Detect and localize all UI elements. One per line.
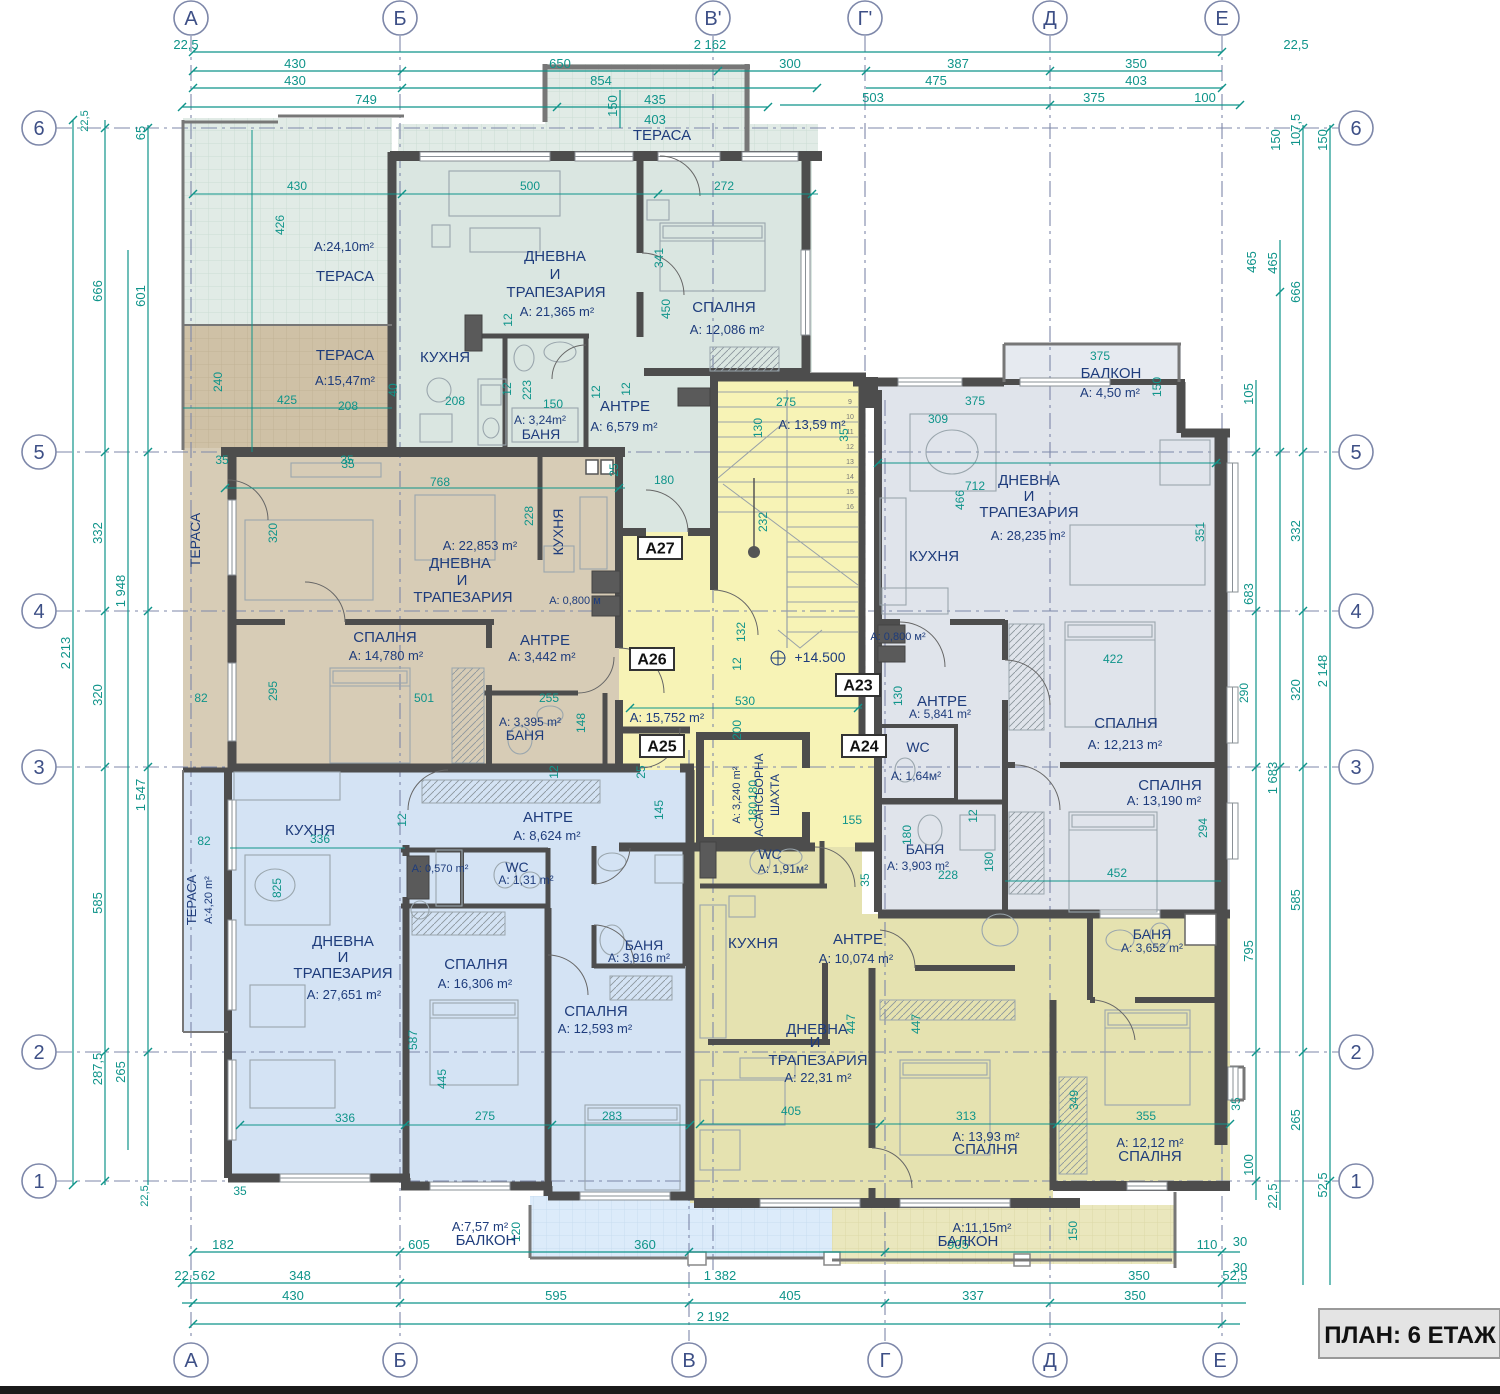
svg-text:12: 12	[730, 657, 744, 671]
svg-text:605: 605	[408, 1237, 430, 1252]
svg-text:148: 148	[574, 713, 588, 733]
svg-text:360: 360	[634, 1237, 656, 1252]
svg-text:ТЕРАСА: ТЕРАСА	[184, 874, 199, 925]
svg-text:375: 375	[1090, 349, 1110, 363]
svg-text:232: 232	[756, 512, 770, 532]
svg-text:180: 180	[654, 473, 674, 487]
svg-text:БАНЯ: БАНЯ	[906, 841, 944, 857]
svg-text:WC: WC	[906, 739, 929, 755]
svg-text:A26: A26	[637, 652, 666, 669]
svg-text:БАНЯ: БАНЯ	[1133, 926, 1171, 942]
svg-text:A23: A23	[843, 678, 872, 695]
svg-text:132: 132	[734, 622, 748, 642]
svg-text:65: 65	[133, 126, 148, 140]
svg-text:475: 475	[925, 73, 947, 88]
svg-text:430: 430	[284, 73, 306, 88]
svg-text:22,5: 22,5	[139, 1185, 151, 1206]
svg-text:А: 0,800 м²: А: 0,800 м²	[870, 631, 926, 643]
svg-text:287,5: 287,5	[90, 1053, 105, 1086]
svg-text:35: 35	[340, 453, 354, 467]
svg-text:ТРАПЕЗАРИЯ: ТРАПЕЗАРИЯ	[413, 589, 512, 606]
svg-text:СПАЛНЯ: СПАЛНЯ	[444, 956, 507, 973]
svg-text:12: 12	[547, 765, 561, 779]
svg-text:265: 265	[113, 1061, 128, 1083]
svg-text:1: 1	[33, 1171, 44, 1193]
svg-text:5: 5	[33, 442, 44, 464]
svg-text:А: 1,91м²: А: 1,91м²	[758, 862, 808, 876]
svg-text:450: 450	[659, 299, 673, 319]
svg-text:585: 585	[90, 892, 105, 914]
svg-text:150: 150	[1268, 129, 1283, 151]
svg-text:445: 445	[435, 1069, 449, 1089]
svg-text:ДНЕВНА: ДНЕВНА	[998, 472, 1060, 489]
svg-text:405: 405	[779, 1288, 801, 1303]
svg-text:А: 1,31 m²: А: 1,31 m²	[498, 873, 553, 887]
svg-text:10: 10	[846, 414, 854, 421]
svg-text:387: 387	[947, 56, 969, 71]
svg-text:А: 3,442 m²: А: 3,442 m²	[508, 649, 576, 664]
svg-text:6: 6	[1350, 118, 1361, 140]
svg-text:КУХНЯ: КУХНЯ	[420, 349, 470, 366]
svg-text:666: 666	[1288, 281, 1303, 303]
svg-text:208: 208	[338, 399, 358, 413]
svg-text:16: 16	[846, 504, 854, 511]
svg-text:320: 320	[1288, 679, 1303, 701]
svg-text:А: 8,624 m²: А: 8,624 m²	[513, 828, 581, 843]
svg-text:430: 430	[282, 1288, 304, 1303]
svg-text:А: 3,652 m²: А: 3,652 m²	[1121, 941, 1183, 955]
svg-text:150: 150	[1150, 377, 1164, 397]
svg-text:А: 22,31 m²: А: 22,31 m²	[784, 1070, 852, 1085]
svg-text:12: 12	[846, 444, 854, 451]
svg-text:25: 25	[634, 765, 648, 779]
svg-text:255: 255	[539, 691, 559, 705]
svg-text:3: 3	[33, 757, 44, 779]
svg-text:БАНЯ: БАНЯ	[522, 426, 560, 442]
svg-text:265: 265	[1288, 1109, 1303, 1131]
svg-text:БАЛКОН: БАЛКОН	[938, 1233, 999, 1250]
svg-text:В: В	[682, 1350, 695, 1372]
svg-text:И: И	[1024, 488, 1035, 505]
svg-text:435: 435	[644, 92, 666, 107]
svg-text:Д: Д	[1043, 8, 1057, 30]
svg-text:82: 82	[194, 691, 208, 705]
svg-text:595: 595	[545, 1288, 567, 1303]
svg-text:22,5: 22,5	[79, 110, 91, 131]
svg-text:283: 283	[602, 1109, 622, 1123]
svg-text:320: 320	[266, 523, 280, 543]
svg-text:ТЕРАСА: ТЕРАСА	[316, 347, 374, 364]
svg-text:А: 10,074 m²: А: 10,074 m²	[819, 951, 894, 966]
svg-text:Е: Е	[1215, 8, 1228, 30]
svg-text:12: 12	[395, 813, 409, 827]
svg-text:712: 712	[965, 479, 985, 493]
svg-text:КУХНЯ: КУХНЯ	[285, 822, 335, 839]
svg-text:А: 3,240 m²: А: 3,240 m²	[731, 766, 743, 823]
svg-text:СПАЛНЯ: СПАЛНЯ	[564, 1003, 627, 1020]
svg-text:585: 585	[1288, 889, 1303, 911]
svg-text:425: 425	[277, 393, 297, 407]
svg-text:А: А	[184, 1350, 198, 1372]
svg-text:854: 854	[590, 73, 612, 88]
svg-text:500: 500	[520, 179, 540, 193]
svg-text:БАЛКОН: БАЛКОН	[1081, 365, 1142, 382]
svg-text:Е: Е	[1213, 1350, 1226, 1372]
svg-text:403: 403	[644, 112, 666, 127]
svg-text:А: 16,306 m²: А: 16,306 m²	[438, 976, 513, 991]
svg-text:6: 6	[33, 118, 44, 140]
svg-text:БАЛКОН: БАЛКОН	[456, 1232, 517, 1249]
svg-text:Б: Б	[393, 8, 406, 30]
svg-text:587: 587	[406, 1030, 420, 1050]
svg-text:А: 14,780 m²: А: 14,780 m²	[349, 648, 424, 663]
svg-text:ТРАПЕЗАРИЯ: ТРАПЕЗАРИЯ	[979, 504, 1078, 521]
svg-text:155: 155	[842, 813, 862, 827]
svg-text:СПАЛНЯ: СПАЛНЯ	[353, 629, 416, 646]
svg-text:1 683: 1 683	[1265, 762, 1280, 795]
svg-text:КУХНЯ: КУХНЯ	[728, 935, 778, 952]
svg-text:А: 15,752 m²: А: 15,752 m²	[630, 710, 705, 725]
svg-text:275: 275	[776, 395, 796, 409]
svg-text:100: 100	[1194, 90, 1216, 105]
svg-text:275: 275	[475, 1109, 495, 1123]
svg-text:351: 351	[1193, 522, 1207, 542]
svg-text:350: 350	[1125, 56, 1147, 71]
svg-text:СПАЛНЯ: СПАЛНЯ	[1118, 1148, 1181, 1165]
svg-text:223: 223	[520, 380, 534, 400]
svg-text:2: 2	[33, 1042, 44, 1064]
svg-text:447: 447	[909, 1014, 923, 1034]
svg-text:WC: WC	[758, 846, 781, 862]
svg-text:АСАНСЬОРНА: АСАНСЬОРНА	[752, 753, 766, 836]
svg-text:СПАЛНЯ: СПАЛНЯ	[954, 1141, 1017, 1158]
svg-text:КУХНЯ: КУХНЯ	[550, 509, 566, 556]
svg-text:52,5: 52,5	[1222, 1268, 1247, 1283]
svg-text:530: 530	[735, 694, 755, 708]
svg-text:110: 110	[1197, 1237, 1218, 1252]
svg-text:228: 228	[522, 506, 536, 526]
svg-text:БАНЯ: БАНЯ	[506, 727, 544, 743]
svg-text:И: И	[338, 949, 349, 966]
svg-text:100: 100	[1241, 1154, 1256, 1176]
svg-text:465: 465	[1244, 251, 1259, 273]
svg-text:АНТРЕ: АНТРЕ	[833, 931, 883, 948]
svg-text:А: 4,50 m²: А: 4,50 m²	[1080, 385, 1141, 400]
svg-text:795: 795	[1241, 940, 1256, 962]
svg-text:СПАЛНЯ: СПАЛНЯ	[692, 299, 755, 316]
svg-text:2 162: 2 162	[694, 37, 727, 52]
svg-text:ПЛАН: 6 ЕТАЖ: ПЛАН: 6 ЕТАЖ	[1324, 1322, 1496, 1349]
svg-text:1: 1	[1350, 1171, 1361, 1193]
svg-text:22,5: 22,5	[174, 1268, 199, 1283]
svg-text:СПАЛНЯ: СПАЛНЯ	[1138, 777, 1201, 794]
svg-text:ДНЕВНА: ДНЕВНА	[429, 555, 491, 572]
svg-text:12: 12	[501, 313, 515, 327]
svg-text:Г': Г'	[858, 8, 873, 30]
svg-text:332: 332	[90, 522, 105, 544]
svg-text:501: 501	[414, 691, 434, 705]
svg-text:82: 82	[197, 834, 211, 848]
svg-text:405: 405	[781, 1104, 801, 1118]
svg-text:3: 3	[1350, 757, 1361, 779]
svg-text:430: 430	[284, 56, 306, 71]
svg-text:15: 15	[846, 489, 854, 496]
svg-text:Б: Б	[393, 1350, 406, 1372]
svg-text:337: 337	[962, 1288, 984, 1303]
svg-text:АНТРЕ: АНТРЕ	[600, 398, 650, 415]
svg-text:А:4,20 m²: А:4,20 m²	[203, 876, 215, 924]
svg-text:1 547: 1 547	[133, 779, 148, 812]
svg-text:350: 350	[1128, 1268, 1150, 1283]
svg-text:14: 14	[846, 474, 854, 481]
svg-text:145: 145	[652, 800, 666, 820]
svg-text:5: 5	[1350, 442, 1361, 464]
svg-text:А: 0,800 м: А: 0,800 м	[549, 595, 601, 607]
svg-text:452: 452	[1107, 866, 1127, 880]
svg-text:9: 9	[848, 399, 852, 406]
svg-text:35: 35	[233, 1184, 247, 1198]
svg-text:4: 4	[1350, 601, 1361, 623]
svg-text:35: 35	[215, 453, 229, 467]
svg-text:ТРАПЕЗАРИЯ: ТРАПЕЗАРИЯ	[293, 965, 392, 982]
svg-text:А: 28,235 m²: А: 28,235 m²	[991, 528, 1066, 543]
svg-text:313: 313	[956, 1109, 976, 1123]
svg-text:150: 150	[605, 95, 620, 117]
svg-text:ТЕРАСА: ТЕРАСА	[316, 268, 374, 285]
svg-text:22,5: 22,5	[1265, 1183, 1280, 1208]
svg-text:2 148: 2 148	[1315, 655, 1330, 688]
svg-text:ТЕРАСА: ТЕРАСА	[187, 512, 203, 567]
svg-text:А: 5,841 m²: А: 5,841 m²	[909, 707, 971, 721]
svg-text:22,5: 22,5	[173, 37, 198, 52]
svg-text:25: 25	[607, 463, 621, 477]
svg-text:336: 336	[335, 1111, 355, 1125]
svg-text:ШАХТА: ШАХТА	[768, 774, 782, 816]
svg-text:349: 349	[1067, 1090, 1081, 1110]
svg-text:601: 601	[133, 285, 148, 307]
svg-text:332: 332	[1288, 520, 1303, 542]
svg-text:И: И	[550, 266, 561, 283]
svg-text:35: 35	[858, 873, 872, 887]
svg-text:А: 3,903 m²: А: 3,903 m²	[887, 859, 949, 873]
svg-text:666: 666	[90, 280, 105, 302]
svg-text:35: 35	[1229, 1097, 1243, 1111]
svg-text:466: 466	[953, 490, 967, 510]
svg-text:А: 27,651 m²: А: 27,651 m²	[307, 987, 382, 1002]
svg-text:ДНЕВНА: ДНЕВНА	[524, 248, 586, 265]
svg-text:КУХНЯ: КУХНЯ	[909, 548, 959, 565]
svg-text:426: 426	[273, 215, 287, 235]
svg-text:2 192: 2 192	[697, 1309, 730, 1324]
svg-text:295: 295	[266, 681, 280, 701]
svg-text:Г: Г	[880, 1350, 891, 1372]
svg-text:208: 208	[445, 394, 465, 408]
svg-text:465: 465	[1265, 252, 1280, 274]
svg-text:+14.500: +14.500	[795, 649, 846, 665]
svg-text:А: 0,570 m²: А: 0,570 m²	[412, 863, 469, 875]
svg-text:375: 375	[965, 394, 985, 408]
svg-text:А: 12,593 m²: А: 12,593 m²	[558, 1021, 633, 1036]
svg-text:503: 503	[862, 90, 884, 105]
svg-text:ТЕРАСА: ТЕРАСА	[633, 127, 691, 144]
svg-text:290: 290	[1237, 683, 1251, 703]
svg-text:А: 6,579 m²: А: 6,579 m²	[590, 419, 658, 434]
svg-text:A24: A24	[849, 739, 878, 756]
svg-text:ТРАПЕЗАРИЯ: ТРАПЕЗАРИЯ	[506, 284, 605, 301]
svg-text:825: 825	[270, 878, 284, 898]
svg-text:А: 22,853 m²: А: 22,853 m²	[443, 538, 518, 553]
svg-text:АНТРЕ: АНТРЕ	[520, 632, 570, 649]
svg-text:А: 21,365 m²: А: 21,365 m²	[520, 304, 595, 319]
svg-text:294: 294	[1196, 818, 1210, 838]
svg-text:1 948: 1 948	[113, 575, 128, 608]
svg-text:150: 150	[543, 397, 563, 411]
svg-text:Д: Д	[1043, 1350, 1057, 1372]
svg-text:А: 1,64м²: А: 1,64м²	[891, 769, 941, 783]
svg-text:А: А	[184, 8, 198, 30]
svg-text:430: 430	[287, 179, 307, 193]
svg-text:749: 749	[355, 92, 377, 107]
svg-text:А: 13,59 m²: А: 13,59 m²	[778, 417, 846, 432]
svg-text:40: 40	[386, 383, 400, 397]
svg-text:180: 180	[982, 852, 996, 872]
svg-text:403: 403	[1125, 73, 1147, 88]
svg-text:ДНЕВНА: ДНЕВНА	[312, 933, 374, 950]
svg-text:22,5: 22,5	[1283, 37, 1308, 52]
svg-text:А: 3,916 m²: А: 3,916 m²	[608, 951, 670, 965]
svg-text:30: 30	[1233, 1234, 1247, 1249]
svg-text:52,5: 52,5	[1315, 1172, 1330, 1197]
svg-text:A27: A27	[645, 541, 674, 558]
svg-text:1 382: 1 382	[704, 1268, 737, 1283]
svg-text:272: 272	[714, 179, 734, 193]
svg-text:350: 350	[1124, 1288, 1146, 1303]
svg-text:12: 12	[966, 809, 980, 823]
svg-text:12: 12	[589, 385, 603, 399]
svg-text:И: И	[810, 1034, 821, 1051]
svg-text:375: 375	[1083, 90, 1105, 105]
svg-text:12: 12	[619, 382, 633, 396]
svg-text:422: 422	[1103, 652, 1123, 666]
svg-text:4: 4	[33, 601, 44, 623]
svg-text:150: 150	[1066, 1221, 1080, 1241]
svg-text:200: 200	[730, 720, 744, 740]
svg-text:А:15,47m²: А:15,47m²	[315, 373, 376, 388]
svg-text:СПАЛНЯ: СПАЛНЯ	[1094, 715, 1157, 732]
svg-text:12: 12	[500, 382, 514, 396]
svg-text:650: 650	[549, 56, 571, 71]
svg-text:A25: A25	[647, 739, 676, 756]
svg-text:341: 341	[652, 248, 666, 268]
svg-text:А: 13,190 m²: А: 13,190 m²	[1127, 793, 1202, 808]
svg-text:320: 320	[90, 684, 105, 706]
svg-text:309: 309	[928, 412, 948, 426]
svg-text:А: 3,24m²: А: 3,24m²	[514, 413, 566, 427]
svg-text:768: 768	[430, 475, 450, 489]
svg-text:105: 105	[1241, 383, 1256, 405]
svg-text:348: 348	[289, 1268, 311, 1283]
svg-text:А:24,10m²: А:24,10m²	[314, 239, 375, 254]
svg-text:355: 355	[1136, 1109, 1156, 1123]
svg-text:2 213: 2 213	[58, 637, 73, 670]
svg-text:683: 683	[1241, 583, 1256, 605]
svg-text:АНТРЕ: АНТРЕ	[523, 809, 573, 826]
svg-text:150: 150	[1315, 129, 1330, 151]
svg-text:130: 130	[751, 418, 765, 438]
svg-text:62: 62	[201, 1268, 215, 1283]
svg-text:2: 2	[1350, 1042, 1361, 1064]
svg-text:А: 12,213 m²: А: 12,213 m²	[1088, 737, 1163, 752]
svg-text:107,5: 107,5	[1288, 114, 1303, 147]
svg-text:В': В'	[704, 8, 721, 30]
svg-text:130: 130	[891, 686, 905, 706]
svg-text:И: И	[457, 572, 468, 589]
svg-text:ТРАПЕЗАРИЯ: ТРАПЕЗАРИЯ	[768, 1052, 867, 1069]
svg-text:300: 300	[779, 56, 801, 71]
svg-text:13: 13	[846, 459, 854, 466]
svg-text:240: 240	[211, 372, 225, 392]
svg-text:А: 12,086 m²: А: 12,086 m²	[690, 322, 765, 337]
svg-text:182: 182	[212, 1237, 234, 1252]
